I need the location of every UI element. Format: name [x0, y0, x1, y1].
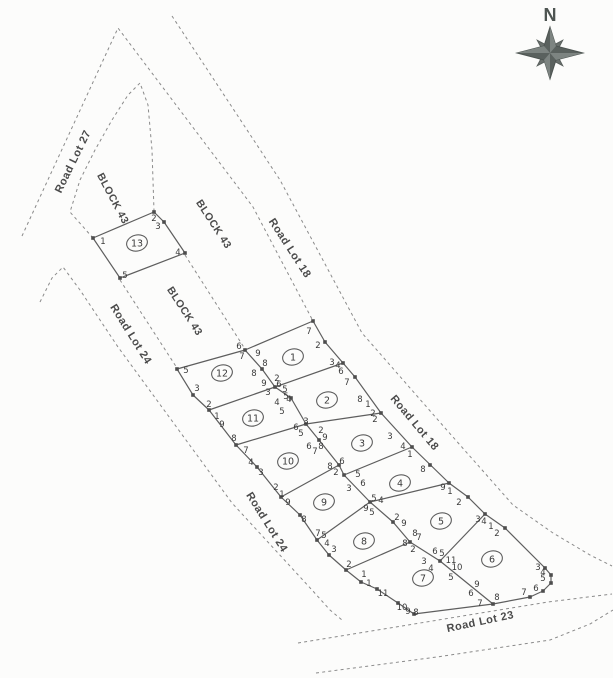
vertex-marker	[503, 526, 507, 530]
vertex-marker	[528, 595, 532, 599]
corner-point-number: 7	[243, 446, 248, 456]
corner-point-number: 5	[279, 407, 284, 417]
corner-point-number: 8	[413, 608, 418, 618]
lot-number-text: 2	[324, 395, 330, 406]
corner-point-number: 2	[333, 468, 338, 478]
vertex-marker	[549, 581, 553, 585]
corner-point-number: 4	[378, 496, 383, 506]
lot-number-text: 5	[438, 516, 444, 527]
corner-point-number: 8	[494, 593, 499, 603]
corner-point-number: 7	[344, 378, 349, 388]
road-lot-label: Road Lot 23	[446, 609, 515, 635]
corner-point-number: 11	[378, 589, 389, 599]
corner-point-number: 7	[306, 327, 311, 337]
corner-point-number: 2	[456, 498, 461, 508]
lot-number-text: 3	[359, 438, 365, 449]
block-label: BLOCK 43	[164, 285, 205, 338]
corner-point-number: 5	[369, 508, 374, 518]
road-lot-23-upper-edge	[298, 594, 612, 643]
corner-point-number: 8	[262, 359, 267, 369]
corner-point-number: 2	[410, 545, 415, 555]
block-label: BLOCK 43	[94, 171, 131, 226]
corner-point-number: 9	[405, 607, 410, 617]
corner-point-number: 5	[298, 429, 303, 439]
vertex-marker	[408, 540, 412, 544]
corner-point-number: 9	[285, 498, 290, 508]
corner-point-number: 5	[448, 573, 453, 583]
corner-point-number: 3	[265, 388, 270, 398]
lot-number-text: 7	[420, 573, 426, 584]
vertex-marker	[359, 580, 363, 584]
corner-point-numbers: 1234572346767988926535445532198743219875…	[100, 214, 545, 618]
vertex-marker	[466, 495, 470, 499]
corner-point-number: 6	[432, 547, 437, 557]
corner-point-number: 9	[363, 504, 368, 514]
corner-point-number: 8	[420, 465, 425, 475]
corner-point-number: 7	[521, 588, 526, 598]
corner-point-number: 9	[219, 420, 224, 430]
corner-point-number: 8	[301, 515, 306, 525]
corner-point-number: 9	[474, 580, 479, 590]
vertex-marker	[428, 463, 432, 467]
corner-point-number: 4	[175, 248, 180, 258]
corner-point-number: 6	[339, 457, 344, 467]
corner-point-number: 3	[155, 222, 160, 232]
road-lot-18-far-edge	[172, 16, 612, 566]
corner-point-number: 6	[360, 479, 365, 489]
subdivision-plat-map: 1234572346767988926535445532198743219875…	[0, 0, 613, 678]
corner-point-number: 7	[239, 352, 244, 362]
corner-point-number: 2	[273, 483, 278, 493]
vertex-marker	[483, 512, 487, 516]
vertex-marker	[447, 481, 451, 485]
corner-point-number: 9	[401, 519, 406, 529]
corner-point-number: 1	[100, 237, 105, 247]
corner-point-number: 1	[488, 522, 493, 532]
lot-number-text: 12	[216, 368, 228, 379]
road-lot-label: Road Lot 18	[388, 393, 441, 453]
corner-point-number: 10	[452, 563, 463, 573]
corner-point-number: 2	[315, 341, 320, 351]
corner-point-number: 7	[312, 447, 317, 457]
corner-point-number: 3	[387, 432, 392, 442]
lot-number-text: 11	[247, 413, 259, 424]
corner-point-number: 2	[206, 400, 211, 410]
vertex-marker	[323, 340, 327, 344]
corner-point-number: 8	[327, 462, 332, 472]
lot-number-text: 13	[131, 238, 143, 249]
vertex-marker	[311, 319, 315, 323]
corner-point-number: 6	[533, 584, 538, 594]
corner-point-number: 7	[477, 599, 482, 609]
corner-point-number: 6	[338, 367, 343, 377]
corner-point-number: 2	[372, 415, 377, 425]
vertex-marker	[353, 375, 357, 379]
vertex-marker	[549, 573, 553, 577]
vertex-marker	[175, 367, 179, 371]
corner-point-number: 5	[183, 366, 188, 376]
vertex-marker	[342, 473, 346, 477]
corner-point-number: 5	[439, 549, 444, 559]
corner-point-number: 4	[286, 395, 291, 405]
corner-point-number: 4	[400, 442, 405, 452]
survey-plat-page: 1234572346767988926535445532198743219875…	[0, 0, 613, 678]
corner-point-number: 5	[540, 574, 545, 584]
corner-point-number: 5	[122, 271, 127, 281]
corner-point-number: 4	[324, 539, 329, 549]
corner-point-number: 6	[468, 589, 473, 599]
corner-point-number: 2	[394, 513, 399, 523]
corner-point-number: 6	[276, 380, 281, 390]
corner-point-number: 9	[440, 483, 445, 493]
road-lot-label: Road Lot 18	[266, 216, 313, 280]
corner-point-number: 1	[366, 579, 371, 589]
lot-boundary-solid-lines	[93, 212, 551, 614]
corner-point-number: 3	[258, 468, 263, 478]
road-lot-label: Road Lot 27	[53, 128, 94, 195]
vertex-marker	[91, 236, 95, 240]
corner-point-number: 3	[475, 515, 480, 525]
vertex-marker	[327, 553, 331, 557]
lot-number-text: 1	[290, 352, 296, 363]
corner-point-number: 1	[447, 487, 452, 497]
corner-point-number: 7	[315, 529, 320, 539]
vertex-marker	[410, 445, 414, 449]
corner-point-number: 4	[248, 458, 253, 468]
corner-point-number: 7	[416, 533, 421, 543]
corner-point-number: 3	[194, 384, 199, 394]
corner-point-number: 3	[421, 557, 426, 567]
corner-point-number: 3	[346, 484, 351, 494]
lot-number-text: 9	[321, 497, 327, 508]
compass-north-label: N	[544, 5, 557, 25]
block-label: BLOCK 43	[193, 198, 234, 251]
corner-point-number: 2	[346, 560, 351, 570]
vertex-marker	[341, 361, 345, 365]
lot-number-text: 4	[397, 478, 403, 489]
corner-point-number: 4	[481, 517, 486, 527]
vertex-marker	[541, 589, 545, 593]
corner-point-number: 8	[318, 442, 323, 452]
corner-point-number: 6	[236, 342, 241, 352]
corner-point-number: 3	[331, 545, 336, 555]
corner-point-number: 1	[407, 450, 412, 460]
lot-number-text: 8	[361, 536, 367, 547]
vertex-marker	[438, 559, 442, 563]
corner-point-number: 9	[255, 349, 260, 359]
corner-point-number: 8	[231, 434, 236, 444]
corner-point-number: 6	[306, 442, 311, 452]
corner-point-number: 8	[251, 369, 256, 379]
corner-point-number: 8	[357, 395, 362, 405]
road-lot-label: Road Lot 24	[107, 302, 154, 367]
vertex-marker	[118, 276, 122, 280]
corner-point-number: 1	[279, 490, 284, 500]
block43-inner-corner-curve	[70, 83, 154, 238]
vertex-marker	[379, 411, 383, 415]
corner-point-number: 8	[402, 539, 407, 549]
corner-point-number: 3	[303, 417, 308, 427]
vertex-marker	[162, 220, 166, 224]
lot-number-text: 6	[489, 554, 495, 565]
corner-point-number: 2	[494, 529, 499, 539]
corner-point-number: 3	[329, 358, 334, 368]
vertex-marker	[183, 251, 187, 255]
lot-number-text: 10	[282, 456, 294, 467]
compass-rose-icon: N	[517, 5, 583, 79]
corner-point-number: 5	[371, 494, 376, 504]
